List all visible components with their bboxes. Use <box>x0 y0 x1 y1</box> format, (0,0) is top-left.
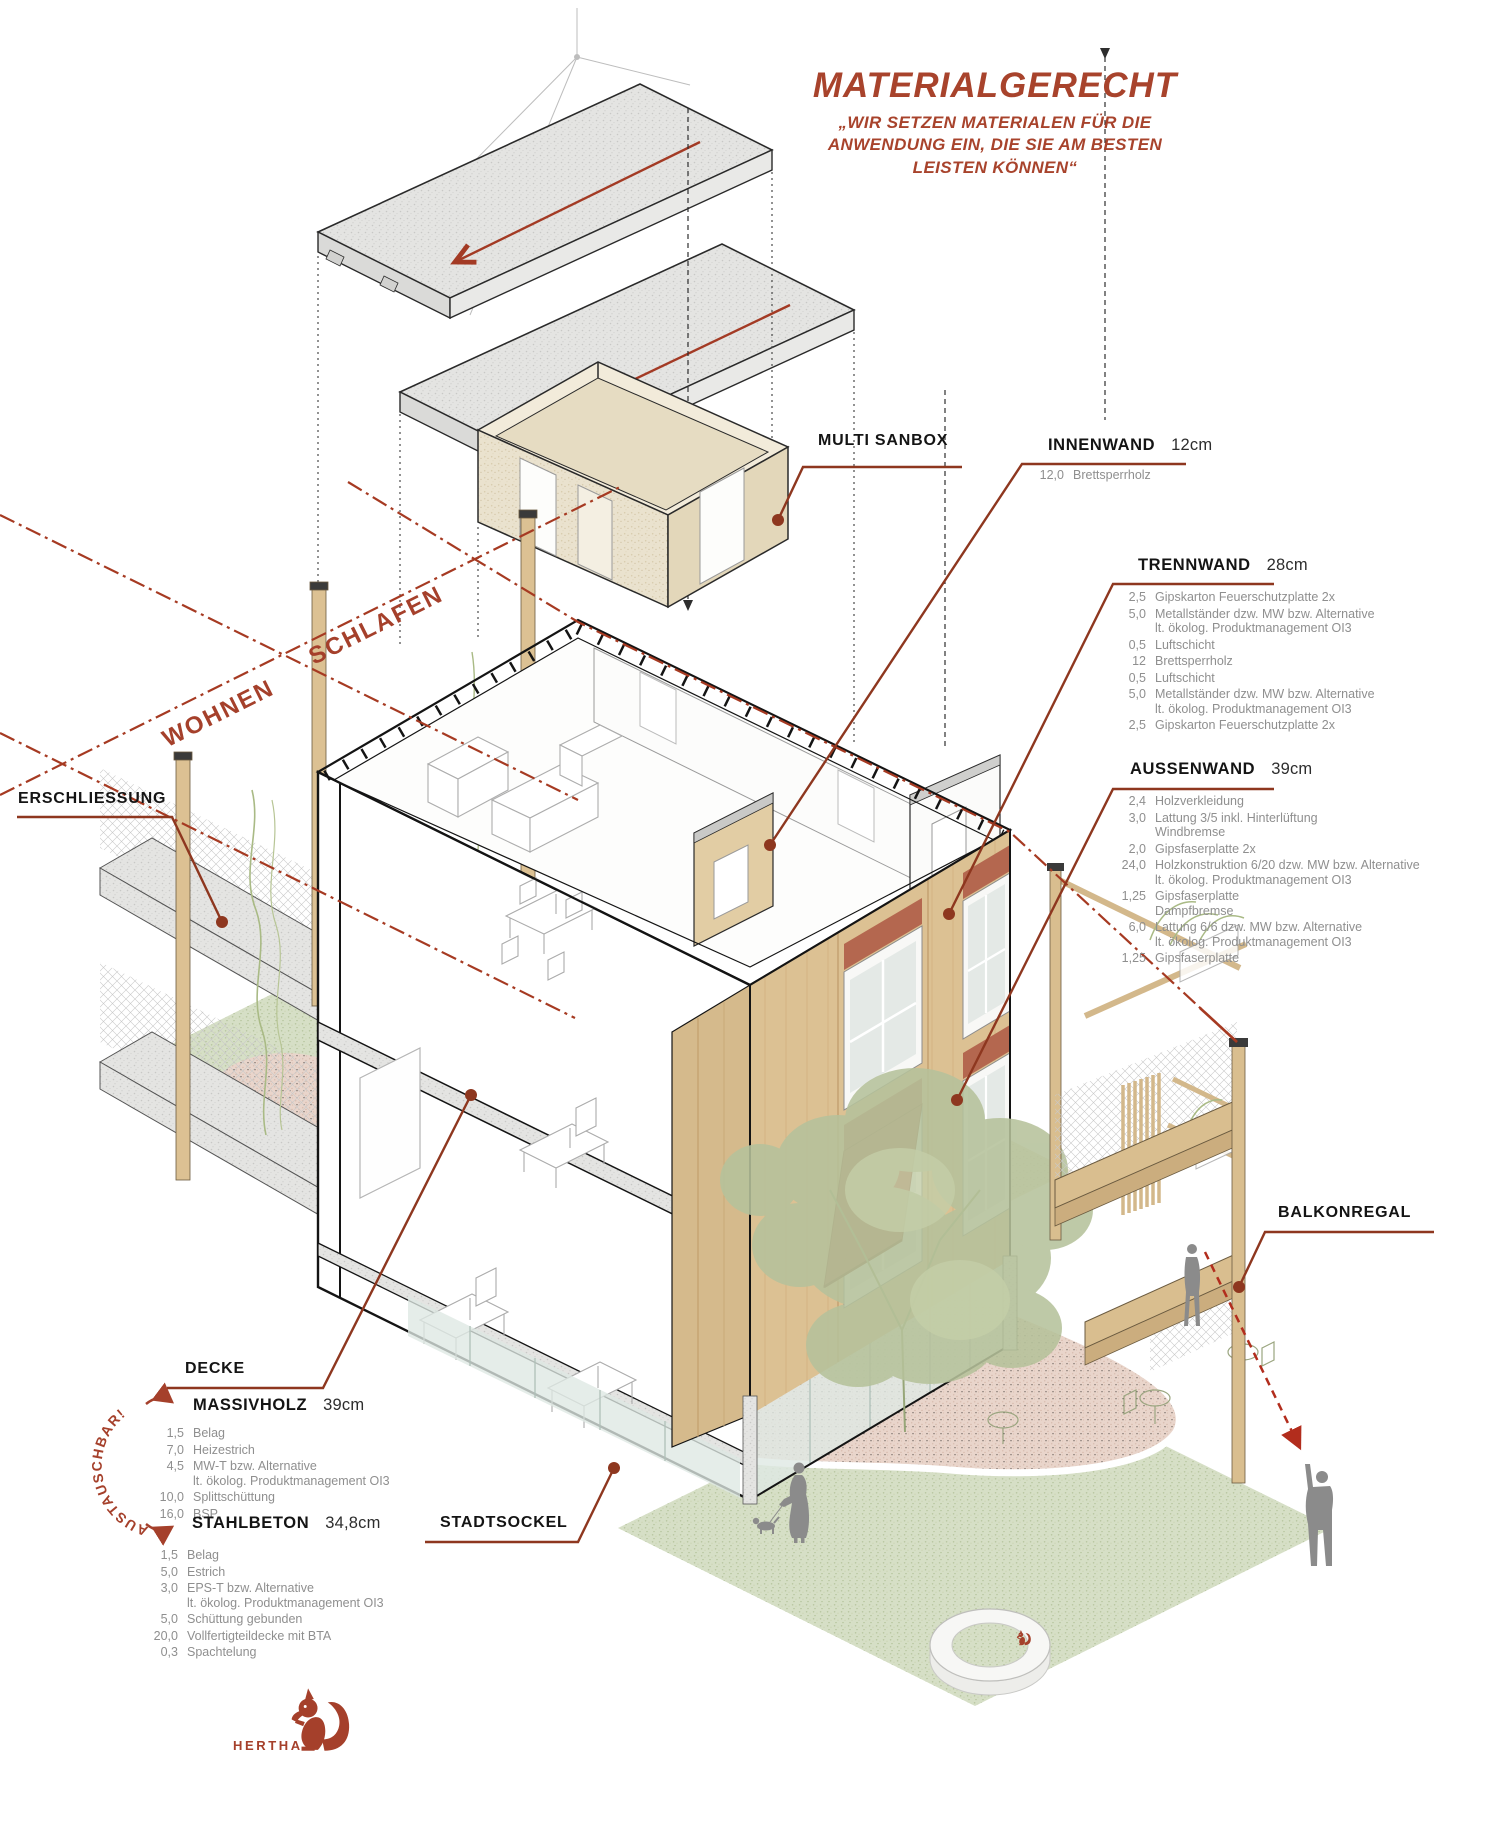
label-aussenwand: AUSSENWAND39cm <box>1130 760 1312 779</box>
label-balkonregal: BALKONREGAL <box>1278 1204 1411 1222</box>
trennwand-layers: 2,5Gipskarton Feuerschutzplatte 2x5,0Met… <box>1108 590 1375 735</box>
layer-row: 5,0Metallständer dzw. MW bzw. Alternativ… <box>1108 687 1375 716</box>
layer-row: 12Brettsperrholz <box>1108 654 1375 669</box>
layer-row: 5,0Metallständer dzw. MW bzw. Alternativ… <box>1108 607 1375 636</box>
layer-row: 5,0Schüttung gebunden <box>140 1612 384 1627</box>
svg-text:AUSTAUSCHBAR!: AUSTAUSCHBAR! <box>89 1405 150 1540</box>
aussenwand-layers: 2,4Holzverkleidung3,0Lattung 3/5 inkl. H… <box>1108 794 1420 968</box>
layer-row: 12,0Brettsperrholz <box>1026 468 1151 483</box>
layer-row: 6,0Lattung 6/6 dzw. MW bzw. Alternative … <box>1108 920 1420 949</box>
layer-row: 4,5MW-T bzw. Alternative lt. ökolog. Pro… <box>146 1459 390 1488</box>
layer-row: 2,0Gipsfaserplatte 2x <box>1108 842 1420 857</box>
layer-row: 0,5Luftschicht <box>1108 638 1375 653</box>
label-stadtsockel: STADTSOCKEL <box>440 1514 568 1532</box>
title-block: MATERIALGERECHT „WIR SETZEN MATERIALEN F… <box>800 66 1190 179</box>
austauschbar-arc-label: AUSTAUSCHBAR! <box>89 1405 150 1540</box>
page-title: MATERIALGERECHT <box>800 66 1190 106</box>
hertha-logo-text: HERTHA <box>233 1738 303 1753</box>
layer-row: 2,4Holzverkleidung <box>1108 794 1420 809</box>
layer-row: 24,0Holzkonstruktion 6/20 dzw. MW bzw. A… <box>1108 858 1420 887</box>
layer-row: 2,5Gipskarton Feuerschutzplatte 2x <box>1108 590 1375 605</box>
title-quote: „WIR SETZEN MATERIALEN FÜR DIE ANWENDUNG… <box>800 112 1190 179</box>
layer-row: 1,5Belag <box>146 1426 390 1441</box>
ring-planter <box>930 1609 1050 1695</box>
layer-row: 7,0Heizestrich <box>146 1443 390 1458</box>
layer-row: 1,25Gipsfaserplatte <box>1108 951 1420 966</box>
label-erschliessung: ERSCHLIESSUNG <box>18 790 166 808</box>
layer-row: 1,5Belag <box>140 1548 384 1563</box>
layer-row: 2,5Gipskarton Feuerschutzplatte 2x <box>1108 718 1375 733</box>
label-trennwand: TRENNWAND28cm <box>1138 556 1308 575</box>
layer-row: 10,0Splittschüttung <box>146 1490 390 1505</box>
layer-row: 3,0Lattung 3/5 inkl. Hinterlüftung Windb… <box>1108 811 1420 840</box>
innenwand-layers: 12,0Brettsperrholz <box>1026 468 1151 485</box>
layer-row: 0,3Spachtelung <box>140 1645 384 1660</box>
label-massivholz: MASSIVHOLZ39cm <box>193 1396 364 1415</box>
layer-row: 3,0EPS-T bzw. Alternative lt. ökolog. Pr… <box>140 1581 384 1610</box>
label-multi-sanbox: MULTI SANBOX <box>818 432 948 450</box>
layer-row: 20,0Vollfertigteildecke mit BTA <box>140 1629 384 1644</box>
layer-row: 0,5Luftschicht <box>1108 671 1375 686</box>
label-decke: DECKE <box>185 1360 245 1378</box>
waving-man-figure <box>1305 1464 1333 1566</box>
balkonregal-arrow <box>1205 1252 1300 1448</box>
materialgerecht-poster: AUSTAUSCHBAR! MATERIALGERECHT „WIR SETZE… <box>0 0 1500 1847</box>
massivholz-layers: 1,5Belag7,0Heizestrich4,5MW-T bzw. Alter… <box>146 1426 390 1523</box>
label-stahlbeton: STAHLBETON34,8cm <box>192 1514 381 1533</box>
stahlbeton-layers: 1,5Belag5,0Estrich3,0EPS-T bzw. Alternat… <box>140 1548 384 1662</box>
layer-row: 5,0Estrich <box>140 1565 384 1580</box>
layer-row: 1,25Gipsfaserplatte Dampfbremse <box>1108 889 1420 918</box>
label-innenwand: INNENWAND12cm <box>1048 436 1212 455</box>
